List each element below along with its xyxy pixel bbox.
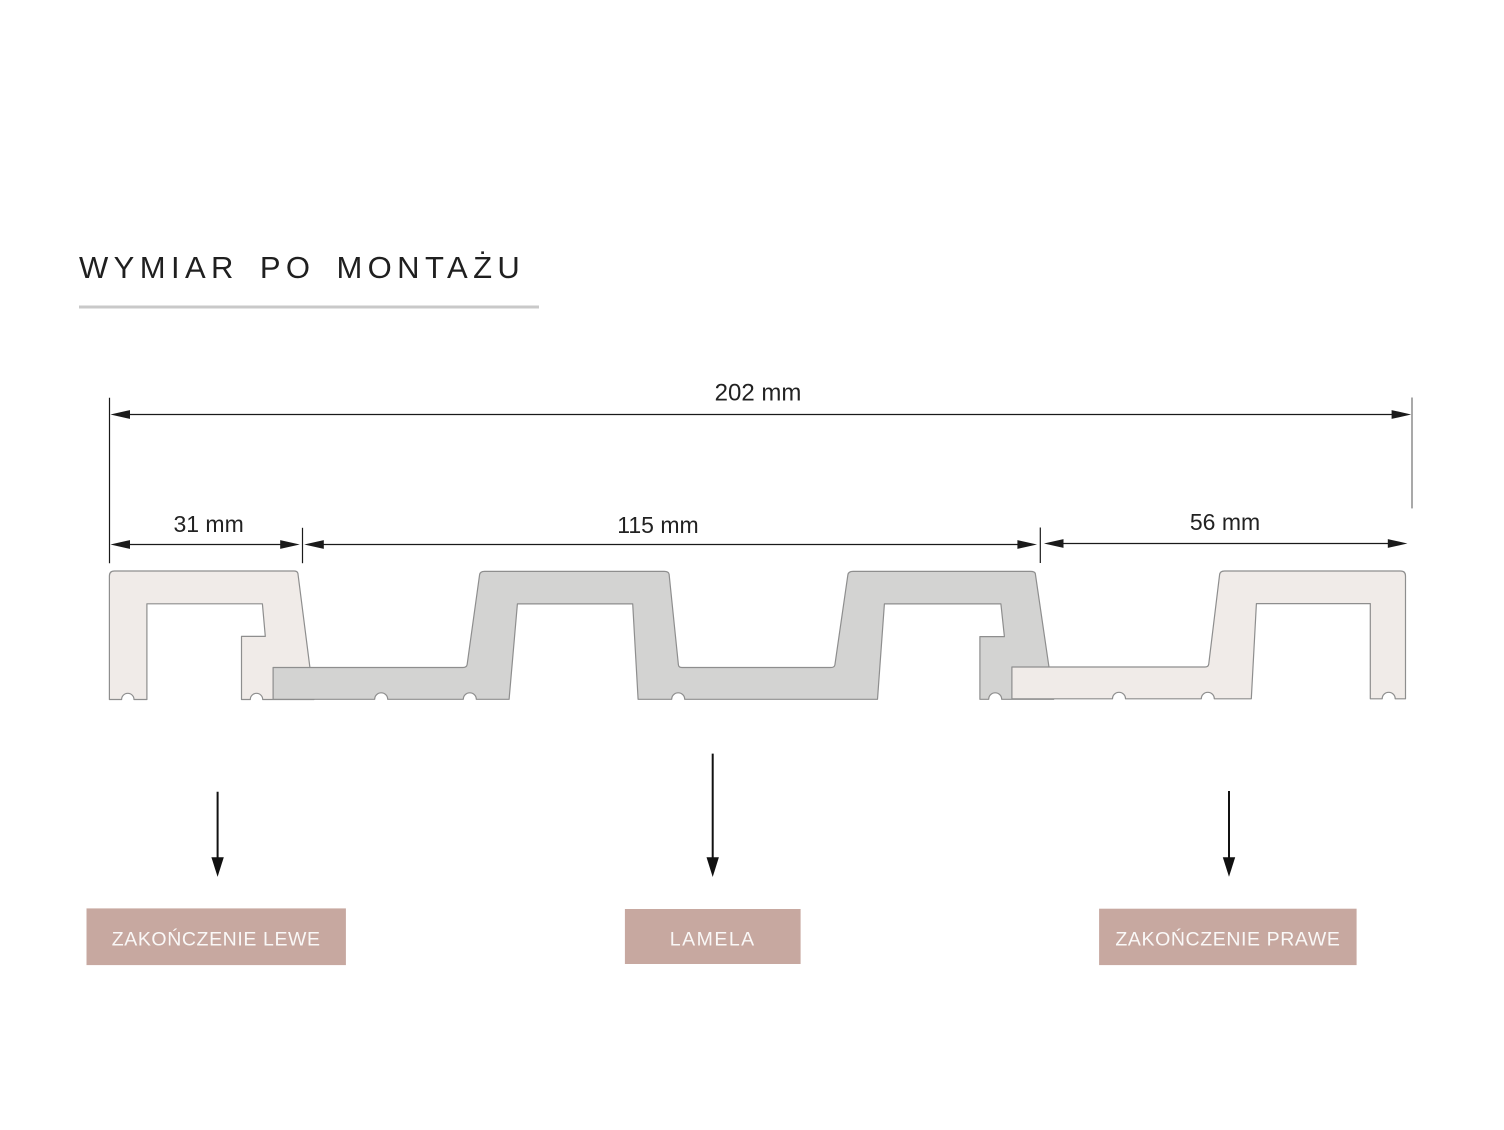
svg-text:ZAKOŃCZENIE PRAWE: ZAKOŃCZENIE PRAWE: [1115, 928, 1340, 951]
svg-text:31 mm: 31 mm: [173, 511, 243, 537]
svg-text:LAMELA: LAMELA: [670, 929, 756, 951]
svg-text:115 mm: 115 mm: [617, 512, 698, 538]
svg-text:202 mm: 202 mm: [715, 380, 802, 407]
svg-text:ZAKOŃCZENIE LEWE: ZAKOŃCZENIE LEWE: [112, 928, 321, 951]
svg-text:WYMIAR PO MONTAŻU: WYMIAR PO MONTAŻU: [79, 250, 525, 285]
svg-text:56 mm: 56 mm: [1190, 509, 1260, 535]
